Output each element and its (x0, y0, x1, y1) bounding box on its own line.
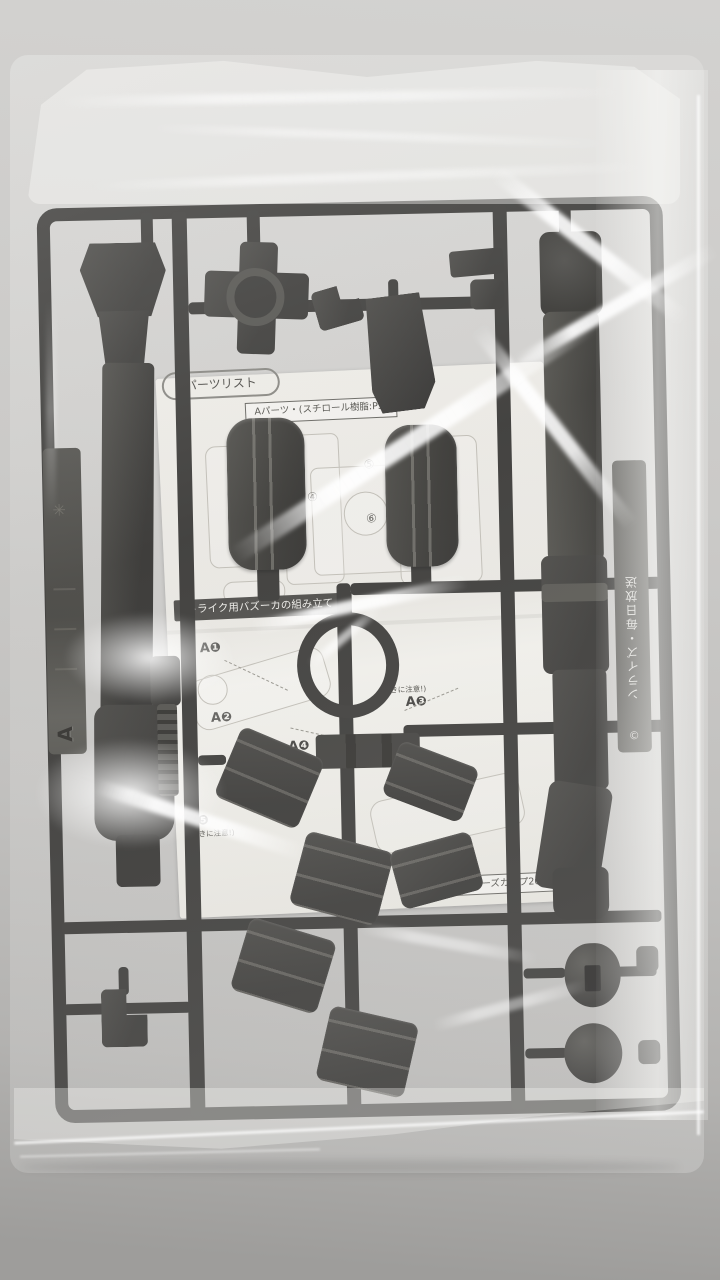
bazooka-body-upper (543, 311, 604, 562)
small-square-part (636, 946, 659, 972)
small-square-part (638, 1040, 660, 1064)
runner-letter: A (53, 726, 77, 742)
bazooka-body-lower (552, 669, 609, 790)
ball-slot (584, 965, 601, 991)
bazooka-barrel-tip (116, 834, 161, 887)
photo-of-model-kit-bag: パーツリスト Aパーツ・(スチロール樹脂:PS) ④ ⑤ ⑥ トライク用バズーカ… (0, 0, 720, 1280)
small-bracket-part (470, 279, 505, 310)
bazooka-barrel-part (100, 363, 154, 713)
copyright-icon: © (629, 729, 640, 742)
sprue-gate (523, 968, 565, 979)
small-block-part (150, 656, 181, 707)
grip-cylinder-part (226, 417, 307, 571)
runner-scene: パーツリスト Aパーツ・(スチロール樹脂:PS) ④ ⑤ ⑥ トライク用バズーカ… (0, 0, 720, 1280)
cross-joint-part (203, 240, 310, 355)
copyright-tag: ンライズ・毎日放送 © (612, 460, 652, 753)
bazooka-foot-part (552, 867, 609, 920)
copyright-tag-text: ンライズ・毎日放送 (620, 470, 642, 700)
grip-cylinder-part (384, 424, 459, 567)
sprue-gate (198, 755, 226, 766)
small-bracket-part (449, 247, 505, 278)
bazooka-body-mid (541, 555, 609, 674)
ps-resin-mark-icon: ✳ (50, 503, 69, 517)
spring-part (157, 704, 179, 796)
bazooka-rear-knob (539, 231, 603, 316)
sprue-gate (525, 1048, 567, 1059)
bazooka-collar (541, 583, 607, 602)
runner-letter-tag: ✳ A (43, 448, 87, 755)
sprue-gate (257, 565, 280, 601)
